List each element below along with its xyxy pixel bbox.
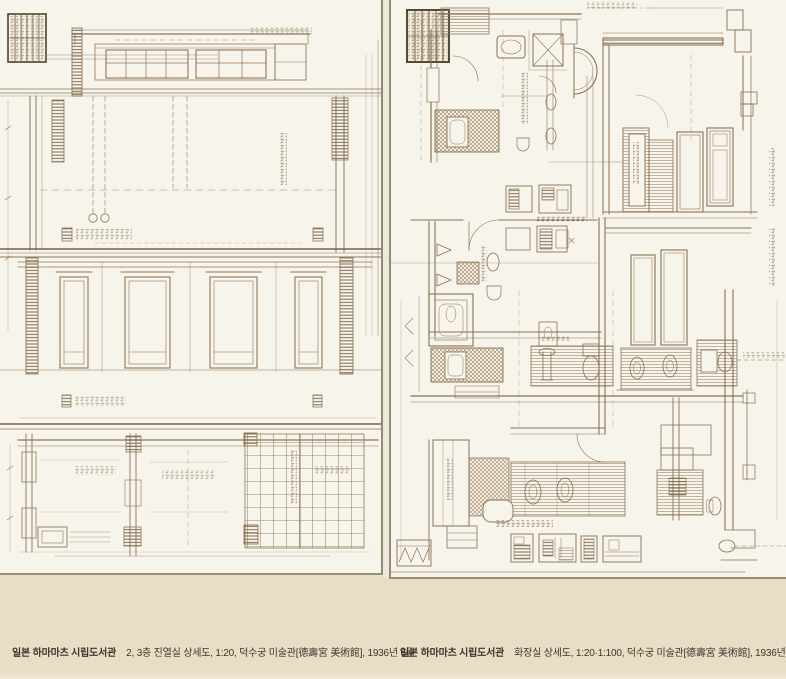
book-page-scan: { "page": { "background_color": "#e9ddc6… bbox=[0, 0, 786, 679]
shelving-grid-b bbox=[300, 434, 364, 548]
clerestory-section bbox=[72, 27, 312, 96]
apse-alcove bbox=[574, 48, 597, 94]
urinal-room bbox=[617, 250, 693, 390]
right-plate-caption: 일본 하마마츠 시립도서관 화장실 상세도, 1:20·1:100, 덕수궁 미… bbox=[400, 647, 786, 661]
right-caption-description: 화장실 상세도, 1:20·1:100, 덕수궁 미술관[德壽宮 美術館], 1… bbox=[514, 647, 786, 661]
left-plate-caption: 일본 하마마츠 시립도서관 2, 3층 진열실 상세도, 1:20, 덕수궁 미… bbox=[12, 647, 415, 661]
lower-bath-plan bbox=[405, 294, 503, 398]
right-plate-scan bbox=[389, 0, 786, 579]
sink-plan bbox=[546, 94, 556, 110]
caption-row: 일본 하마마츠 시립도서관 2, 3층 진열실 상세도, 1:20, 덕수궁 미… bbox=[0, 647, 786, 667]
plan-section bbox=[7, 433, 378, 556]
left-caption-source: 일본 하마마츠 시립도서관 bbox=[12, 647, 116, 661]
floor-detail-band bbox=[0, 395, 381, 429]
wc-plan bbox=[411, 185, 601, 338]
right-caption-source: 일본 하마마츠 시립도서관 bbox=[400, 647, 504, 661]
door-frame bbox=[677, 132, 703, 212]
hanging-lamp-symbols bbox=[89, 96, 109, 222]
left-plate-scan bbox=[0, 0, 383, 575]
stair-hall-plan bbox=[587, 2, 776, 286]
floor-line bbox=[0, 249, 381, 257]
right-wc bbox=[697, 340, 786, 386]
bath-suite-plan bbox=[421, 8, 597, 162]
toilet-plan bbox=[517, 138, 529, 151]
bottom-detail-sections bbox=[511, 534, 641, 562]
margin-note-vertical-text bbox=[769, 148, 776, 206]
left-drawing bbox=[0, 0, 381, 573]
ceiling-line bbox=[0, 89, 381, 93]
title-block-stamp bbox=[8, 14, 218, 62]
urinal-symbols bbox=[437, 244, 451, 286]
room-label-vertical-text bbox=[521, 72, 528, 124]
caption-note-text bbox=[495, 520, 553, 527]
room-label-vertical-text bbox=[280, 133, 287, 185]
lower-right-room bbox=[657, 398, 786, 552]
display-case-elevation bbox=[0, 258, 381, 374]
right-drawing bbox=[391, 0, 786, 577]
scan-edge-highlight bbox=[0, 672, 786, 679]
door-swing-arc bbox=[469, 220, 499, 250]
center-wall bbox=[599, 218, 605, 434]
door-swing-arc bbox=[453, 56, 478, 81]
left-caption-description: 2, 3층 진열실 상세도, 1:20, 덕수궁 미술관[德壽宮 美術館], 1… bbox=[126, 647, 415, 661]
